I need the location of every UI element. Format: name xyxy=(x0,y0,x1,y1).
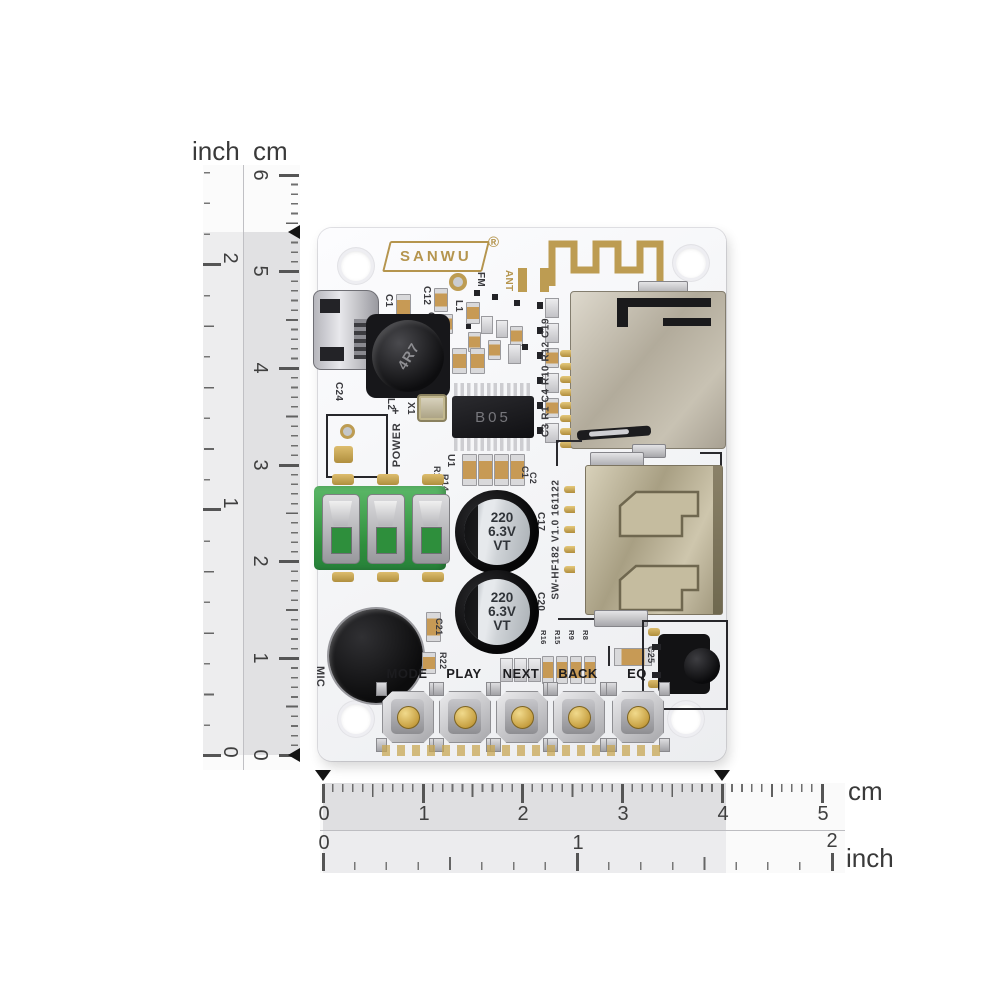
usb-a-tab-bottom xyxy=(594,610,648,627)
button-leg xyxy=(659,682,670,696)
jack-contact-clip xyxy=(367,494,405,564)
capacitor-voltage: 6.3V xyxy=(488,525,516,539)
silkscreen-line xyxy=(700,452,722,454)
cm-number: 1 xyxy=(411,803,437,825)
ic-pins-bottom xyxy=(454,438,532,451)
capacitor-value: 220 xyxy=(491,591,514,605)
mounting-hole-top-right xyxy=(673,245,709,281)
usb-slot-notch xyxy=(320,347,344,361)
mounting-hole-bottom-left xyxy=(338,701,374,737)
tactile-button-mode xyxy=(379,688,435,744)
smd-resistor xyxy=(494,454,509,486)
tactile-button-play xyxy=(436,688,492,744)
horizontal-ruler-inch-label: inch xyxy=(846,843,894,874)
sd-detent-detail xyxy=(663,318,711,326)
jack-clip-tongue xyxy=(374,501,397,526)
ir-leg xyxy=(652,644,661,650)
silkscreen-label-ant: ANT xyxy=(503,270,514,291)
usb-pin xyxy=(564,566,575,573)
inductor-coil: 4R7 xyxy=(372,320,444,392)
cm-number: 3 xyxy=(249,451,271,479)
power-inductor: 4R7 xyxy=(366,314,450,398)
tactile-button-next xyxy=(493,688,549,744)
silkscreen-pad xyxy=(492,294,498,300)
silkscreen-label-fm: FM xyxy=(475,272,486,287)
silkscreen-label-power: POWER xyxy=(391,415,403,475)
ruler-vertical-divider xyxy=(243,165,244,770)
button-actuator xyxy=(397,706,420,729)
capacitor-marking: 220 6.3V VT xyxy=(464,579,530,645)
silkscreen-label-c2: C2 xyxy=(528,472,538,484)
sd-pin xyxy=(560,363,571,370)
smd-inductor xyxy=(466,302,480,324)
micro-sd-slot xyxy=(570,291,726,449)
button-leg xyxy=(547,682,558,696)
product-photo-canvas: { "rulers": { "vertical": { "inch_label"… xyxy=(0,0,1000,1000)
button-actuator xyxy=(454,706,477,729)
capacitor-c20: 220 6.3V VT xyxy=(455,570,539,654)
button-label-eq: EQ xyxy=(607,666,667,681)
cm-number: 0 xyxy=(249,741,271,769)
solder-pad xyxy=(334,446,353,463)
button-label-mode: MODE xyxy=(377,666,437,681)
jack-pad xyxy=(422,572,444,582)
jack-contact-clip xyxy=(322,494,360,564)
button-actuator xyxy=(511,706,534,729)
smd-component xyxy=(470,348,485,374)
silkscreen-label-right-column: C3 R1 C4 R10 R12 C19 xyxy=(541,298,552,458)
crystal-oscillator xyxy=(417,394,447,422)
capacitor-value: 220 xyxy=(491,511,514,525)
board-bottom-extent-marker-icon xyxy=(288,748,300,762)
jack-pad xyxy=(377,572,399,582)
test-point xyxy=(340,424,355,439)
jack-clip-tongue xyxy=(329,501,352,526)
smd-component xyxy=(452,348,467,374)
sd-detent-detail xyxy=(617,307,628,327)
ir-receiver-dome xyxy=(684,648,720,684)
ruler-horizontal-cm-medium-ticks xyxy=(322,784,824,797)
silkscreen-line xyxy=(608,646,610,666)
ruler-horizontal xyxy=(320,783,845,873)
pcb-board: SANWU ® FM ANT C1 C12 C13 L1 4R7 L2 C24 xyxy=(318,228,726,761)
silkscreen-pad xyxy=(466,324,471,329)
capacitor-series: VT xyxy=(493,619,510,633)
board-left-extent-marker-icon xyxy=(315,770,331,781)
inch-number: 0 xyxy=(219,741,241,763)
cm-major-tick xyxy=(279,270,299,273)
jack-contact-clip xyxy=(412,494,450,564)
inch-number: 0 xyxy=(311,832,337,854)
usb-a-port xyxy=(585,465,723,615)
test-point xyxy=(449,273,467,291)
usb-pin xyxy=(564,546,575,553)
silkscreen-label-c12: C12 xyxy=(421,286,432,305)
tactile-button-eq xyxy=(609,688,665,744)
usb-pin xyxy=(564,506,575,513)
silkscreen-label-x1: X1 xyxy=(405,402,416,415)
button-actuator xyxy=(568,706,591,729)
cm-number: 5 xyxy=(810,803,836,825)
capacitor-voltage: 6.3V xyxy=(488,605,516,619)
button-label-play: PLAY xyxy=(434,666,494,681)
silkscreen-line xyxy=(558,440,582,442)
sd-lever-pin xyxy=(589,429,629,437)
smd-component xyxy=(496,320,508,338)
usb-pin xyxy=(564,526,575,533)
silkscreen-label-c1: C1 xyxy=(383,294,394,307)
silkscreen-label-r15: R15 xyxy=(553,630,562,645)
jack-clip-window xyxy=(376,527,397,554)
silkscreen-label-c17: C17 xyxy=(535,512,546,531)
smd-resistor xyxy=(478,454,493,486)
cm-number: 0 xyxy=(311,803,337,825)
cm-major-tick xyxy=(821,784,824,803)
sd-pin xyxy=(560,389,571,396)
smd-capacitor xyxy=(434,288,448,312)
silkscreen-label-r9: R9 xyxy=(567,630,576,640)
inch-number: 2 xyxy=(819,830,845,852)
brand-logo-text: SANWU xyxy=(400,248,472,265)
sd-pin xyxy=(560,376,571,383)
inch-major-tick xyxy=(576,853,579,871)
registered-trademark-icon: ® xyxy=(488,234,499,251)
sd-detent-detail xyxy=(617,298,711,307)
cm-major-tick xyxy=(721,784,724,803)
inch-major-tick xyxy=(322,853,325,871)
cm-number: 3 xyxy=(610,803,636,825)
cm-major-tick xyxy=(621,784,624,803)
cm-major-tick xyxy=(279,657,299,660)
board-top-extent-marker-icon xyxy=(288,225,300,239)
smd-component xyxy=(481,316,493,334)
board-right-extent-marker-icon xyxy=(714,770,730,781)
tactile-button-back xyxy=(550,688,606,744)
sd-eject-lever xyxy=(577,425,652,440)
jack-pad xyxy=(332,572,354,582)
inductor-marking: 4R7 xyxy=(394,340,423,373)
silkscreen-label-u1: U1 xyxy=(445,454,456,467)
inch-number: 1 xyxy=(565,832,591,854)
smd-component xyxy=(508,344,521,364)
vertical-ruler-inch-label: inch xyxy=(192,136,240,167)
button-leg xyxy=(433,682,444,696)
cm-major-tick xyxy=(322,784,325,803)
jack-clip-window xyxy=(331,527,352,554)
silkscreen-label-c21: C21 xyxy=(434,618,444,635)
smd-component xyxy=(488,340,501,360)
cm-number: 5 xyxy=(249,257,271,285)
jack-clip-tongue xyxy=(419,501,442,526)
cm-number: 2 xyxy=(249,547,271,575)
sd-pin xyxy=(560,428,571,435)
button-solder-pads xyxy=(382,745,662,756)
silkscreen-label-r8: R8 xyxy=(581,630,590,640)
inch-number: 1 xyxy=(219,492,241,514)
capacitor-marking: 220 6.3V VT xyxy=(464,499,530,565)
ic-pins-top xyxy=(454,383,532,396)
cm-number: 1 xyxy=(249,644,271,672)
button-label-next: NEXT xyxy=(491,666,551,681)
cm-major-tick xyxy=(279,464,299,467)
smd-resistor xyxy=(462,454,477,486)
silkscreen-label-c20: C20 xyxy=(535,592,546,611)
silkscreen-label-mic: MIC xyxy=(314,666,326,687)
cm-major-tick xyxy=(279,367,299,370)
button-actuator xyxy=(627,706,650,729)
silkscreen-label-c24: C24 xyxy=(333,382,344,401)
main-ic-chip: B05 xyxy=(452,396,534,438)
vertical-ruler-cm-label: cm xyxy=(253,136,288,167)
ic-marking: B05 xyxy=(475,409,511,426)
cm-number: 2 xyxy=(510,803,536,825)
button-leg xyxy=(606,682,617,696)
jack-pad xyxy=(332,474,354,485)
silkscreen-pad xyxy=(522,344,528,350)
sd-pin xyxy=(560,350,571,357)
capacitor-c17: 220 6.3V VT xyxy=(455,490,539,574)
inch-major-tick xyxy=(831,853,834,871)
cm-major-tick xyxy=(279,174,299,177)
button-label-back: BACK xyxy=(548,666,608,681)
smd-component xyxy=(510,326,523,346)
ir-pad xyxy=(648,628,660,636)
cm-major-tick xyxy=(521,784,524,803)
jack-clip-window xyxy=(421,527,442,554)
sd-pin xyxy=(560,402,571,409)
usb-slot-notch xyxy=(320,299,340,313)
jack-pad xyxy=(422,474,444,485)
silkscreen-label-model: SW-HF182 V1.0 161122 xyxy=(551,460,562,620)
cm-number: 4 xyxy=(249,354,271,382)
cm-major-tick xyxy=(422,784,425,803)
usb-pin xyxy=(564,486,575,493)
silkscreen-pad xyxy=(514,300,520,306)
brand-logo: SANWU xyxy=(382,241,490,272)
horizontal-ruler-cm-label: cm xyxy=(848,776,883,807)
silkscreen-label-l1: L1 xyxy=(453,300,464,312)
button-leg xyxy=(490,682,501,696)
sd-pin xyxy=(560,415,571,422)
capacitor-series: VT xyxy=(493,539,510,553)
inch-number: 2 xyxy=(219,247,241,269)
silkscreen-label-r16: R16 xyxy=(539,630,548,645)
button-leg xyxy=(376,682,387,696)
silkscreen-line xyxy=(558,618,598,620)
mounting-hole-top-left xyxy=(338,248,374,284)
silkscreen-pad xyxy=(474,290,480,296)
usb-a-punch-tabs xyxy=(586,466,722,614)
cm-number: 4 xyxy=(710,803,736,825)
jack-pad xyxy=(377,474,399,485)
audio-jack-3-5mm xyxy=(314,486,446,570)
cm-major-tick xyxy=(279,560,299,563)
sd-pin xyxy=(560,441,571,448)
